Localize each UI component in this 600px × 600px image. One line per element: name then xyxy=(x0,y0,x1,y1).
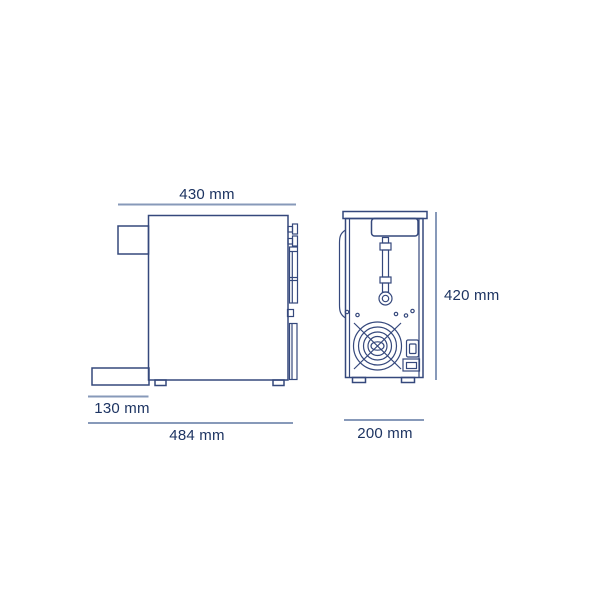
tube-end-ring-outer xyxy=(379,292,392,305)
rear-view xyxy=(340,212,428,383)
tube-fitting-upper xyxy=(380,243,391,250)
technical-drawing-canvas: 430 mm 130 mm 484 mm 200 mm 420 mm xyxy=(0,0,600,600)
side-body-outline xyxy=(149,216,289,381)
knob-upper-cap xyxy=(293,224,298,234)
side-foot-back xyxy=(273,380,284,386)
rear-top-lid xyxy=(343,212,427,219)
rear-panel-strip xyxy=(290,324,298,380)
fan-icon xyxy=(354,322,402,370)
screw-dot xyxy=(345,310,348,313)
power-switch xyxy=(407,340,419,357)
side-foot-front xyxy=(155,380,166,386)
dim-label-top-width: 430 mm xyxy=(179,186,234,203)
tube-end-ring-inner xyxy=(382,295,388,301)
tube-top-stub xyxy=(383,238,389,244)
rear-foot-left xyxy=(353,378,366,383)
screw-dot xyxy=(356,313,359,316)
water-tube xyxy=(379,238,392,306)
tube-fitting-lower xyxy=(380,277,391,283)
screw-dot xyxy=(411,309,414,312)
dimension-drawing: 430 mm 130 mm 484 mm 200 mm 420 mm xyxy=(0,0,600,600)
dim-label-rear-width: 200 mm xyxy=(357,425,412,442)
screw-dot xyxy=(394,312,397,315)
spout-block xyxy=(118,226,149,254)
drip-tray xyxy=(92,368,149,385)
rear-handle-outline xyxy=(290,247,298,303)
dimension-labels: 430 mm 130 mm 484 mm 200 mm 420 mm xyxy=(94,186,499,444)
screw-dot xyxy=(404,314,407,317)
rear-foot-right xyxy=(402,378,415,383)
dim-label-height: 420 mm xyxy=(444,287,499,304)
tube-lower-section xyxy=(383,283,389,292)
knob-lower-cap xyxy=(293,236,298,246)
side-bulge-profile xyxy=(340,230,346,318)
handle-recess xyxy=(372,219,419,237)
tube-upper-section xyxy=(383,250,389,277)
dim-label-tray-depth: 130 mm xyxy=(94,400,149,417)
side-rear-details xyxy=(288,224,298,380)
screw-dots xyxy=(345,309,414,317)
power-switch-rocker xyxy=(410,344,417,354)
power-inlet-socket xyxy=(407,363,417,369)
side-view xyxy=(92,216,298,386)
dim-label-total-depth: 484 mm xyxy=(169,427,224,444)
